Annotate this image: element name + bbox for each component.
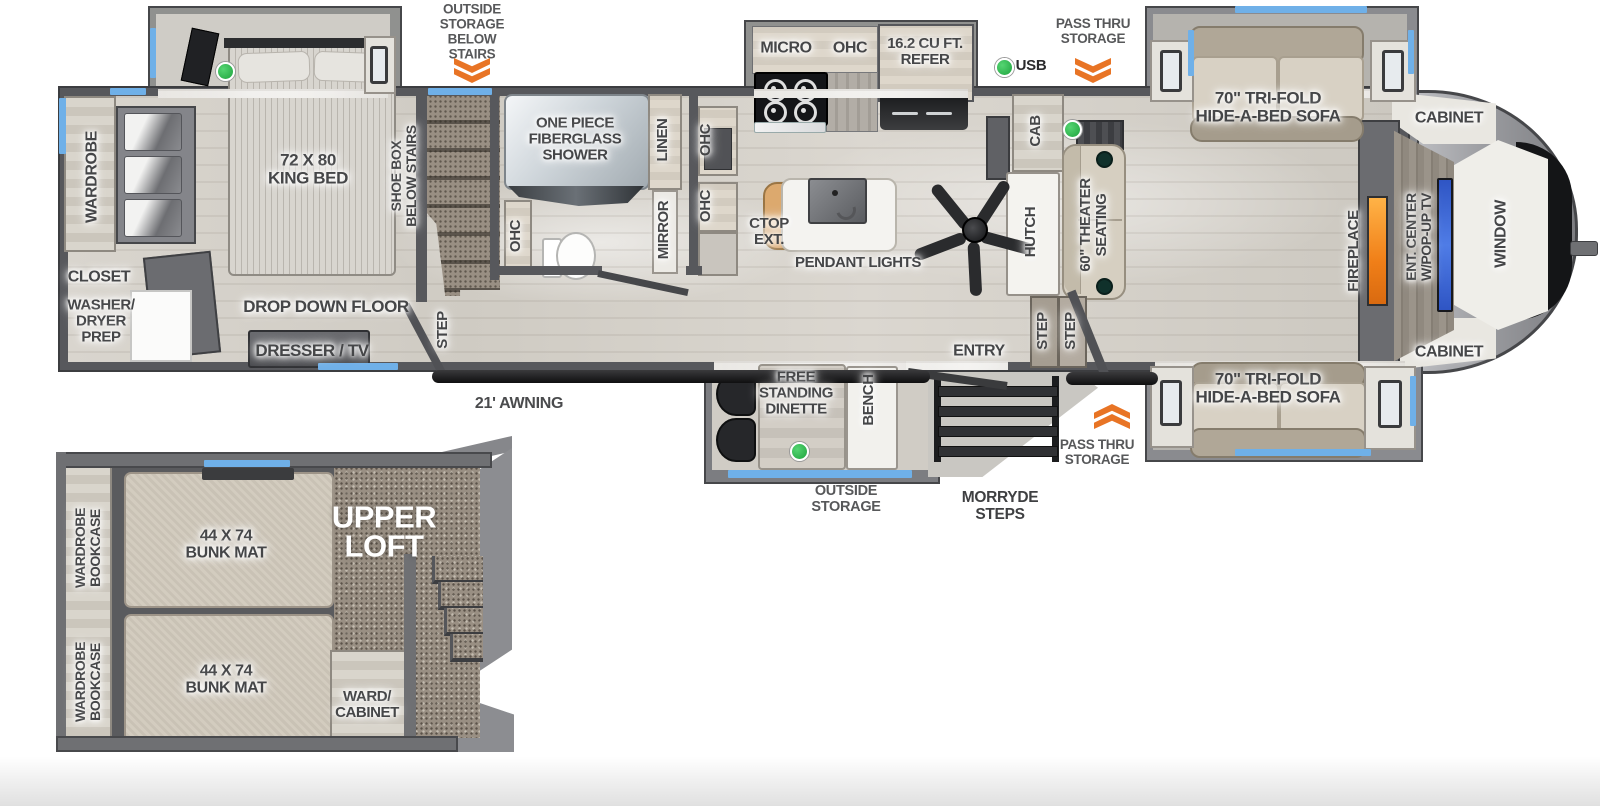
sofa-top-label: 70" TRI-FOLD HIDE-A-BED SOFA — [1195, 90, 1340, 127]
window-above-stairs — [428, 88, 492, 95]
linen-label: LINEN — [655, 118, 671, 161]
sofa-top-end-window — [1382, 50, 1404, 92]
dinette-window — [728, 470, 912, 478]
loft-right-slab — [478, 448, 512, 672]
window-bottom-bedroom — [318, 363, 398, 370]
theater-seating-label: 60" THEATER SEATING — [1078, 178, 1110, 271]
range-front — [754, 122, 826, 133]
pillow — [237, 51, 310, 83]
drawer — [124, 156, 182, 194]
loft-stair-tread — [450, 634, 483, 662]
upper-loft-title: UPPER LOFT — [332, 503, 436, 562]
drawer — [124, 113, 182, 151]
burner-icon — [794, 101, 817, 124]
loft-stair-tread — [444, 608, 483, 636]
sink-drain — [832, 190, 838, 196]
opening-kitchen-slide — [754, 89, 968, 98]
pop-up-tv — [1437, 178, 1453, 312]
range-cooktop — [754, 72, 828, 126]
washer-dryer-prep-label: WASHER/ DRYER PREP — [67, 298, 134, 347]
usb-marker-icon — [995, 58, 1014, 77]
usb-label: USB — [1016, 58, 1047, 75]
loft-stair-wall — [404, 554, 416, 738]
opening-bedroom-slide — [158, 89, 388, 98]
mirror-label: MIRROR — [656, 201, 672, 259]
dinette-chair — [716, 418, 756, 462]
opening-entry-door — [906, 361, 1008, 370]
page-fade — [0, 756, 1600, 806]
morryde-steps-label: MORRYDE STEPS — [962, 489, 1039, 523]
drop-down-floor-label: DROP DOWN FLOOR — [243, 298, 409, 316]
window-top-left — [110, 88, 146, 95]
outside-storage-label: OUTSIDE STORAGE — [811, 484, 880, 516]
entry-label: ENTRY — [953, 342, 1005, 359]
burner-icon — [764, 101, 787, 124]
bunk-mat-2-label: 44 X 74 BUNK MAT — [186, 663, 267, 698]
fireplace-label: FIREPLACE — [1346, 210, 1362, 291]
morryde-tread — [938, 426, 1058, 437]
sofa-bottom-end-window — [1160, 380, 1182, 426]
sofa-bottom-label: 70" TRI-FOLD HIDE-A-BED SOFA — [1195, 371, 1340, 408]
shower-label: ONE PIECE FIBERGLASS SHOWER — [529, 116, 622, 165]
kitchen-base-counter — [698, 232, 738, 276]
ctop-ext-label: CTOP EXT. — [749, 216, 789, 248]
closet-label: CLOSET — [68, 268, 131, 285]
free-standing-dinette-label: FREE STANDING DINETTE — [759, 370, 833, 419]
drawer-chest — [116, 106, 196, 244]
hutch-label: HUTCH — [1023, 207, 1039, 258]
usb-marker-bedroom — [216, 62, 235, 81]
refer-label: 16.2 CU FT. REFER — [887, 36, 963, 68]
sofa-top-window — [1235, 6, 1367, 13]
outside-storage-below-stairs-label: OUTSIDE STORAGE BELOW STAIRS — [440, 2, 504, 61]
drawer — [124, 199, 182, 237]
washer-dryer-box — [130, 290, 192, 362]
pendant-lights-label: PENDANT LIGHTS — [795, 255, 921, 271]
ohc-wall-lower-label: OHC — [698, 190, 714, 222]
pass-thru-storage-bottom-label: PASS THRU STORAGE — [1060, 438, 1134, 468]
cupholder — [1096, 151, 1113, 168]
sofa-top-window-left — [1188, 30, 1194, 76]
sofa-bottom-window-right — [1410, 376, 1416, 426]
dresser-tv-label: DRESSER / TV — [255, 342, 368, 360]
loft-window — [204, 460, 290, 467]
loft-stair-tread — [432, 556, 483, 584]
kitchen-counter — [826, 72, 878, 132]
cabinet-bottom-label: CABINET — [1415, 343, 1483, 360]
pass-thru-storage-top-label: PASS THRU STORAGE — [1056, 17, 1130, 47]
bathroom-ohc-label: OHC — [508, 220, 524, 252]
fireplace — [1367, 196, 1388, 306]
island-sink — [808, 178, 867, 224]
usb-marker-dinette — [790, 442, 809, 461]
ward-cabinet-label: WARD/ CABINET — [335, 689, 399, 721]
wardrobe-label: WARDROBE — [83, 131, 100, 223]
step-2-label: STEP — [1063, 312, 1079, 350]
refrigerator-handle — [926, 112, 952, 115]
loft-wall-bottom — [56, 736, 458, 752]
cabinet-top-label: CABINET — [1415, 109, 1483, 126]
cupholder — [1096, 278, 1113, 295]
rv-floorplan: OUTSIDE STORAGE BELOW STAIRS USB PASS TH… — [0, 0, 1600, 806]
grab-handle-bar — [1066, 372, 1158, 385]
window-rear-wall — [59, 98, 66, 154]
bedroom-slide-window-left — [150, 28, 156, 78]
usb-marker-living — [1063, 120, 1082, 139]
bedroom-slide-window — [370, 46, 388, 84]
window-label: WINDOW — [1492, 200, 1509, 268]
morryde-tread — [938, 446, 1058, 457]
king-bed-label: 72 X 80 KING BED — [268, 152, 348, 189]
step-1-label: STEP — [1035, 312, 1051, 350]
bathroom-wall-bottom — [490, 266, 602, 275]
bed-headboard — [224, 38, 374, 48]
shoe-box-label: SHOE BOX BELOW STAIRS — [389, 125, 419, 227]
bathroom-wall-left — [490, 92, 499, 280]
bunk-mat-1-label: 44 X 74 BUNK MAT — [186, 528, 267, 563]
awning-label: 21' AWNING — [475, 395, 563, 413]
loft-wall-left — [56, 452, 66, 750]
bench-label: BENCH — [861, 374, 877, 425]
stair-railing — [986, 116, 1010, 180]
ohc-wall-upper-label: OHC — [698, 124, 714, 156]
loft-stair-tread — [438, 582, 483, 610]
kitchen-ohc-label: OHC — [833, 39, 867, 56]
sofa-top-end-window — [1160, 50, 1182, 92]
micro-label: MICRO — [760, 39, 811, 56]
awning-bar — [432, 370, 930, 383]
loft-header-bar — [202, 468, 294, 480]
bedroom-step-label: STEP — [435, 311, 451, 349]
ent-center-label: ENT. CENTER W/POP-UP TV — [1404, 193, 1434, 281]
bathroom-wall-right — [689, 95, 698, 275]
refrigerator-handle — [892, 112, 918, 115]
sofa-bottom-end-window — [1378, 380, 1402, 428]
sofa-top-window-right — [1408, 30, 1414, 74]
cab-label: CAB — [1028, 115, 1044, 146]
morryde-tread — [938, 406, 1058, 417]
fan-hub — [962, 217, 988, 243]
hitch-pin — [1570, 241, 1598, 256]
sofa-bottom-window — [1235, 449, 1371, 456]
wardrobe-bookcase-2-label: WARDROBE BOOKCASE — [73, 642, 103, 722]
wardrobe-bookcase-1-label: WARDROBE BOOKCASE — [73, 508, 103, 588]
